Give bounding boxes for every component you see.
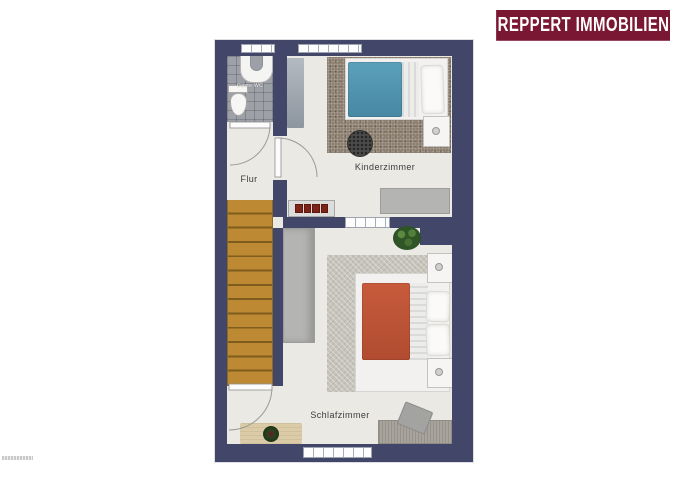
floorplan: Gäste WC Flur Kinderzimmer Schlafzimmer (215, 40, 473, 462)
room-label-schlafzimmer: Schlafzimmer (295, 410, 385, 420)
bedroom-door-leaf (229, 384, 272, 390)
brand-logo: REPPERT IMMOBILIEN (496, 10, 670, 41)
brand-logo-text: REPPERT IMMOBILIEN (497, 14, 669, 37)
room-label-flur: Flur (231, 174, 267, 184)
rug-plant (263, 426, 279, 442)
potted-plant (393, 226, 421, 250)
kids-room-door-leaf (275, 138, 281, 177)
bedroom-door-swing-arc (229, 387, 272, 430)
doors-overlay (215, 40, 473, 462)
room-label-wc: Gäste WC (229, 83, 270, 88)
kids-room-door-swing-arc (278, 138, 317, 177)
bathroom-door-swing-arc (230, 125, 270, 165)
watermark (2, 456, 33, 460)
bathroom-door-leaf (230, 122, 270, 128)
room-label-kinderzimmer: Kinderzimmer (335, 162, 435, 172)
page: REPPERT IMMOBILIEN (0, 0, 680, 480)
